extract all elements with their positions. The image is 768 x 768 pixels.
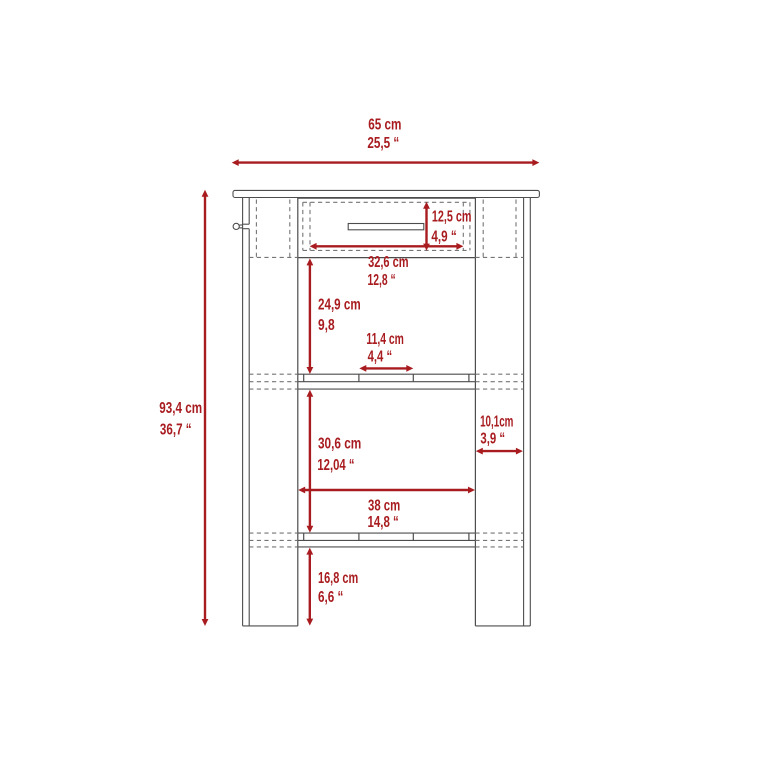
svg-text:10,1cm: 10,1cm xyxy=(480,413,513,430)
svg-text:6,6 “: 6,6 “ xyxy=(318,589,343,606)
svg-text:14,8 “: 14,8 “ xyxy=(368,514,399,531)
svg-text:24,9 cm: 24,9 cm xyxy=(318,297,361,314)
svg-text:65 cm: 65 cm xyxy=(368,116,401,133)
svg-text:12,8 “: 12,8 “ xyxy=(368,272,396,289)
svg-text:38 cm: 38 cm xyxy=(368,497,400,514)
svg-text:25,5 “: 25,5 “ xyxy=(367,135,399,152)
svg-text:32,6 cm: 32,6 cm xyxy=(368,254,409,271)
svg-text:16,8 cm: 16,8 cm xyxy=(318,570,358,587)
svg-text:4,4 “: 4,4 “ xyxy=(368,348,393,365)
svg-text:12,5 cm: 12,5 cm xyxy=(432,209,472,226)
svg-text:4,9 “: 4,9 “ xyxy=(431,229,456,246)
svg-text:9,8: 9,8 xyxy=(318,317,335,334)
svg-text:30,6 cm: 30,6 cm xyxy=(318,436,361,453)
svg-text:12,04 “: 12,04 “ xyxy=(317,457,354,474)
svg-text:3,9 “: 3,9 “ xyxy=(480,431,505,448)
svg-text:93,4 cm: 93,4 cm xyxy=(159,400,202,417)
svg-text:11,4 cm: 11,4 cm xyxy=(366,331,404,348)
svg-text:36,7 “: 36,7 “ xyxy=(160,422,192,439)
